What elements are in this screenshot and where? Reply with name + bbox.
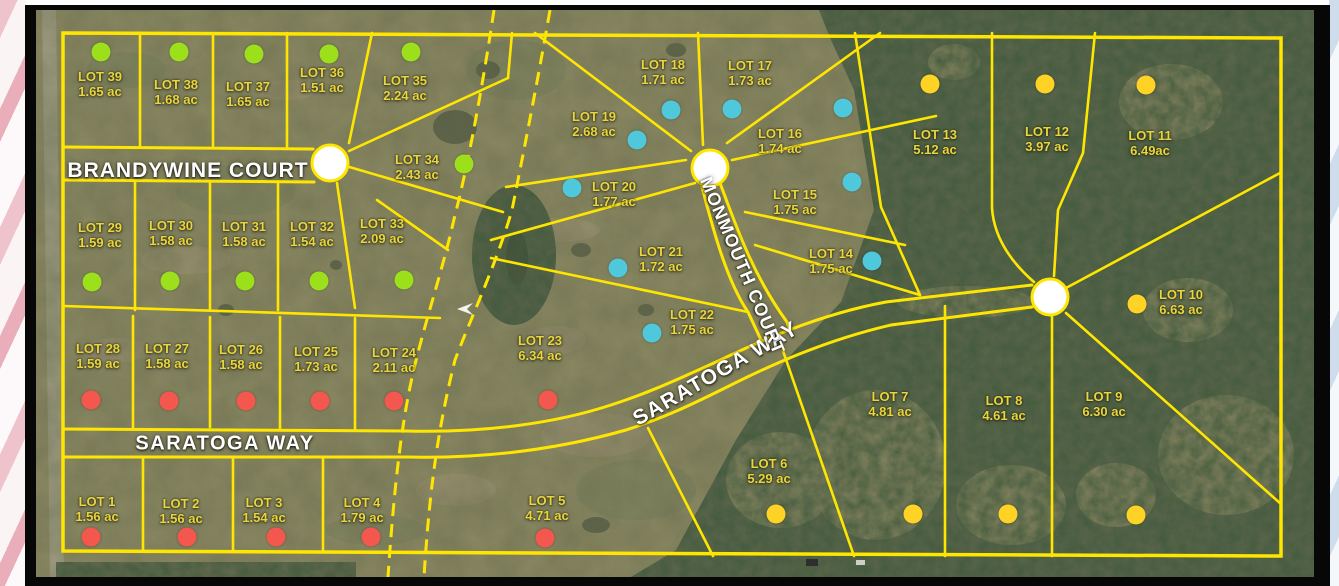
lot-acreage: 5.12 ac bbox=[913, 143, 957, 158]
lot-name: LOT 35 bbox=[383, 74, 427, 89]
lot-label: LOT 211.72 ac bbox=[639, 245, 683, 275]
lot-status-dot bbox=[245, 45, 264, 64]
lot-name: LOT 23 bbox=[518, 334, 562, 349]
lot-name: LOT 33 bbox=[360, 217, 404, 232]
lot-name: LOT 12 bbox=[1025, 125, 1069, 140]
lot-label: LOT 84.61 ac bbox=[982, 394, 1025, 424]
lot-acreage: 2.43 ac bbox=[395, 168, 439, 183]
lot-status-dot bbox=[609, 259, 628, 278]
lot-acreage: 3.97 ac bbox=[1025, 140, 1069, 155]
lot-acreage: 1.59 ac bbox=[78, 236, 122, 251]
lot-label: LOT 261.58 ac bbox=[219, 343, 263, 373]
lot-status-dot bbox=[92, 43, 111, 62]
lot-status-dot bbox=[628, 131, 647, 150]
lot-status-dot bbox=[999, 505, 1018, 524]
lot-status-dot bbox=[921, 75, 940, 94]
lot-status-dot bbox=[563, 179, 582, 198]
lot-label: LOT 21.56 ac bbox=[159, 497, 202, 527]
lot-name: LOT 37 bbox=[226, 80, 270, 95]
lot-acreage: 1.59 ac bbox=[76, 357, 120, 372]
lot-status-dot bbox=[82, 528, 101, 547]
lot-status-dot bbox=[83, 273, 102, 292]
lot-label: LOT 11.56 ac bbox=[75, 495, 118, 525]
lot-status-dot bbox=[843, 173, 862, 192]
lot-acreage: 1.54 ac bbox=[290, 235, 334, 250]
lot-status-dot bbox=[160, 392, 179, 411]
lot-status-dot bbox=[362, 528, 381, 547]
lot-name: LOT 1 bbox=[75, 495, 118, 510]
lot-acreage: 1.65 ac bbox=[78, 85, 122, 100]
lot-label: LOT 106.63 ac bbox=[1159, 288, 1203, 318]
lot-label: LOT 221.75 ac bbox=[670, 308, 714, 338]
street-label-brandywine-court: BRANDYWINE COURT bbox=[67, 159, 308, 183]
lot-status-dot bbox=[767, 505, 786, 524]
lot-status-dot bbox=[170, 43, 189, 62]
street-label-saratoga-way-west: SARATOGA WAY bbox=[135, 433, 314, 456]
lot-acreage: 6.63 ac bbox=[1159, 303, 1203, 318]
lot-name: LOT 6 bbox=[747, 457, 790, 472]
lot-status-dot bbox=[237, 392, 256, 411]
lot-name: LOT 19 bbox=[572, 110, 616, 125]
lot-acreage: 2.68 ac bbox=[572, 125, 616, 140]
lot-name: LOT 9 bbox=[1082, 390, 1125, 405]
lot-label: LOT 135.12 ac bbox=[913, 128, 957, 158]
lot-status-dot bbox=[311, 392, 330, 411]
lot-acreage: 1.72 ac bbox=[639, 260, 683, 275]
lot-acreage: 1.56 ac bbox=[75, 510, 118, 525]
lot-label: LOT 291.59 ac bbox=[78, 221, 122, 251]
lot-name: LOT 27 bbox=[145, 342, 189, 357]
lot-acreage: 6.34 ac bbox=[518, 349, 562, 364]
lot-acreage: 5.29 ac bbox=[747, 472, 790, 487]
lot-name: LOT 5 bbox=[525, 494, 568, 509]
lot-name: LOT 3 bbox=[242, 496, 285, 511]
lot-label: LOT 201.77 ac bbox=[592, 180, 636, 210]
lot-label: LOT 361.51 ac bbox=[300, 66, 344, 96]
lot-status-dot bbox=[1137, 76, 1156, 95]
lot-name: LOT 31 bbox=[222, 220, 266, 235]
lot-acreage: 6.30 ac bbox=[1082, 405, 1125, 420]
aerial-photo: LOT 11.56 acLOT 21.56 acLOT 31.54 acLOT … bbox=[36, 10, 1314, 577]
lot-acreage: 1.77 ac bbox=[592, 195, 636, 210]
lot-status-dot bbox=[863, 252, 882, 271]
lot-acreage: 1.51 ac bbox=[300, 81, 344, 96]
lot-acreage: 2.11 ac bbox=[372, 361, 416, 376]
lot-name: LOT 25 bbox=[294, 345, 338, 360]
lot-name: LOT 32 bbox=[290, 220, 334, 235]
lot-name: LOT 24 bbox=[372, 346, 416, 361]
lot-label: LOT 321.54 ac bbox=[290, 220, 334, 250]
page-background-stripes-right bbox=[1329, 0, 1339, 586]
cul-de-sac-east bbox=[1032, 279, 1068, 315]
lot-name: LOT 26 bbox=[219, 343, 263, 358]
lot-label: LOT 31.54 ac bbox=[242, 496, 285, 526]
lot-acreage: 2.09 ac bbox=[360, 232, 404, 247]
lot-name: LOT 34 bbox=[395, 153, 439, 168]
lot-name: LOT 13 bbox=[913, 128, 957, 143]
lot-status-dot bbox=[395, 271, 414, 290]
lot-name: LOT 14 bbox=[809, 247, 853, 262]
lot-name: LOT 36 bbox=[300, 66, 344, 81]
lot-status-dot bbox=[310, 272, 329, 291]
lot-name: LOT 29 bbox=[78, 221, 122, 236]
lot-acreage: 1.65 ac bbox=[226, 95, 270, 110]
lot-status-dot bbox=[723, 100, 742, 119]
lot-status-dot bbox=[1128, 295, 1147, 314]
lot-label: LOT 332.09 ac bbox=[360, 217, 404, 247]
plat-map-page: LOT 11.56 acLOT 21.56 acLOT 31.54 acLOT … bbox=[0, 0, 1339, 586]
building bbox=[806, 559, 818, 566]
lot-status-dot bbox=[1036, 75, 1055, 94]
lot-name: LOT 11 bbox=[1128, 129, 1171, 144]
lot-label: LOT 371.65 ac bbox=[226, 80, 270, 110]
lot-status-dot bbox=[320, 45, 339, 64]
lot-acreage: 1.73 ac bbox=[294, 360, 338, 375]
lot-status-dot bbox=[267, 528, 286, 547]
lot-label: LOT 391.65 ac bbox=[78, 70, 122, 100]
lot-label: LOT 116.49ac bbox=[1128, 129, 1171, 159]
lot-acreage: 1.56 ac bbox=[159, 512, 202, 527]
lot-acreage: 1.75 ac bbox=[773, 203, 817, 218]
lot-status-dot bbox=[643, 324, 662, 343]
page-background-stripes-left bbox=[0, 0, 26, 586]
building bbox=[856, 560, 865, 565]
lot-label: LOT 236.34 ac bbox=[518, 334, 562, 364]
lot-status-dot bbox=[402, 43, 421, 62]
lot-acreage: 4.81 ac bbox=[868, 405, 911, 420]
lot-name: LOT 17 bbox=[728, 59, 772, 74]
lot-acreage: 6.49ac bbox=[1128, 144, 1171, 159]
lot-name: LOT 2 bbox=[159, 497, 202, 512]
lot-name: LOT 38 bbox=[154, 78, 198, 93]
lot-label: LOT 151.75 ac bbox=[773, 188, 817, 218]
lot-acreage: 1.58 ac bbox=[149, 234, 193, 249]
lot-acreage: 1.74 ac bbox=[758, 142, 802, 157]
lot-status-dot bbox=[834, 99, 853, 118]
lot-label: LOT 342.43 ac bbox=[395, 153, 439, 183]
lot-name: LOT 15 bbox=[773, 188, 817, 203]
lot-label: LOT 311.58 ac bbox=[222, 220, 266, 250]
lot-acreage: 1.75 ac bbox=[809, 262, 853, 277]
lot-acreage: 2.24 ac bbox=[383, 89, 427, 104]
lot-acreage: 1.54 ac bbox=[242, 511, 285, 526]
lot-status-dot bbox=[904, 505, 923, 524]
lot-acreage: 1.73 ac bbox=[728, 74, 772, 89]
lot-label: LOT 171.73 ac bbox=[728, 59, 772, 89]
lot-label: LOT 54.71 ac bbox=[525, 494, 568, 524]
lot-status-dot bbox=[385, 392, 404, 411]
lot-label: LOT 271.58 ac bbox=[145, 342, 189, 372]
cul-de-sac-brandywine bbox=[312, 145, 348, 181]
lot-name: LOT 16 bbox=[758, 127, 802, 142]
lot-acreage: 1.75 ac bbox=[670, 323, 714, 338]
lot-label: LOT 281.59 ac bbox=[76, 342, 120, 372]
lot-label: LOT 96.30 ac bbox=[1082, 390, 1125, 420]
lot-status-dot bbox=[455, 155, 474, 174]
lot-name: LOT 18 bbox=[641, 58, 685, 73]
lot-status-dot bbox=[161, 272, 180, 291]
lot-label: LOT 41.79 ac bbox=[340, 496, 383, 526]
lot-acreage: 4.71 ac bbox=[525, 509, 568, 524]
lot-label: LOT 181.71 ac bbox=[641, 58, 685, 88]
lot-name: LOT 30 bbox=[149, 219, 193, 234]
lot-acreage: 1.58 ac bbox=[222, 235, 266, 250]
lot-status-dot bbox=[178, 528, 197, 547]
lot-status-dot bbox=[236, 272, 255, 291]
lot-name: LOT 20 bbox=[592, 180, 636, 195]
lot-status-dot bbox=[82, 391, 101, 410]
lot-label: LOT 65.29 ac bbox=[747, 457, 790, 487]
lot-label: LOT 352.24 ac bbox=[383, 74, 427, 104]
lot-status-dot bbox=[662, 101, 681, 120]
lot-status-dot bbox=[1127, 506, 1146, 525]
lot-name: LOT 8 bbox=[982, 394, 1025, 409]
lot-label: LOT 141.75 ac bbox=[809, 247, 853, 277]
lot-label: LOT 123.97 ac bbox=[1025, 125, 1069, 155]
lot-status-dot bbox=[536, 529, 555, 548]
lot-acreage: 1.58 ac bbox=[145, 357, 189, 372]
lot-name: LOT 4 bbox=[340, 496, 383, 511]
lot-name: LOT 22 bbox=[670, 308, 714, 323]
lot-acreage: 4.61 ac bbox=[982, 409, 1025, 424]
lot-name: LOT 39 bbox=[78, 70, 122, 85]
lot-label: LOT 251.73 ac bbox=[294, 345, 338, 375]
lot-acreage: 1.58 ac bbox=[219, 358, 263, 373]
lot-acreage: 1.71 ac bbox=[641, 73, 685, 88]
lot-label: LOT 74.81 ac bbox=[868, 390, 911, 420]
lot-name: LOT 28 bbox=[76, 342, 120, 357]
lot-status-dot bbox=[539, 391, 558, 410]
lot-acreage: 1.79 ac bbox=[340, 511, 383, 526]
lot-name: LOT 21 bbox=[639, 245, 683, 260]
lot-label: LOT 161.74 ac bbox=[758, 127, 802, 157]
lot-label: LOT 301.58 ac bbox=[149, 219, 193, 249]
lot-name: LOT 10 bbox=[1159, 288, 1203, 303]
lot-label: LOT 381.68 ac bbox=[154, 78, 198, 108]
lot-label: LOT 192.68 ac bbox=[572, 110, 616, 140]
lot-label: LOT 242.11 ac bbox=[372, 346, 416, 376]
lot-name: LOT 7 bbox=[868, 390, 911, 405]
lot-acreage: 1.68 ac bbox=[154, 93, 198, 108]
